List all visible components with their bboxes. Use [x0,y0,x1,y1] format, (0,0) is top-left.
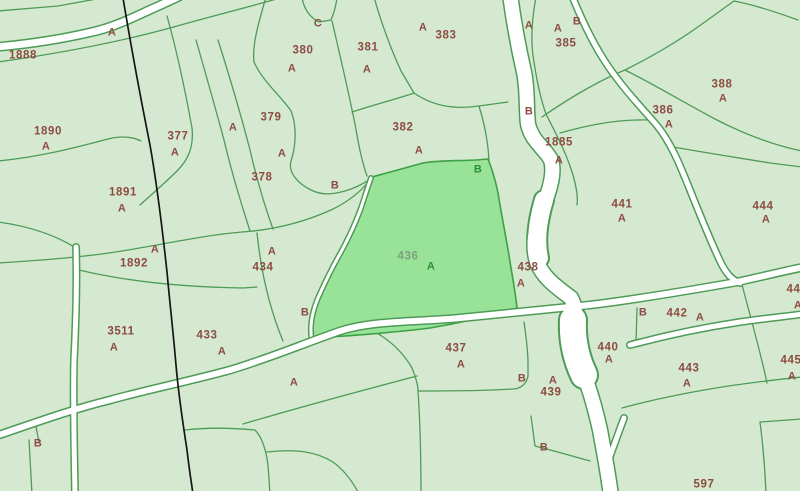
river [510,0,624,491]
survey-line [123,0,193,491]
cadastral-map-viewport[interactable]: 1888A1890A377AA379A378380AC381AA383382AB… [0,0,800,491]
cadastral-map-canvas[interactable] [0,0,800,491]
